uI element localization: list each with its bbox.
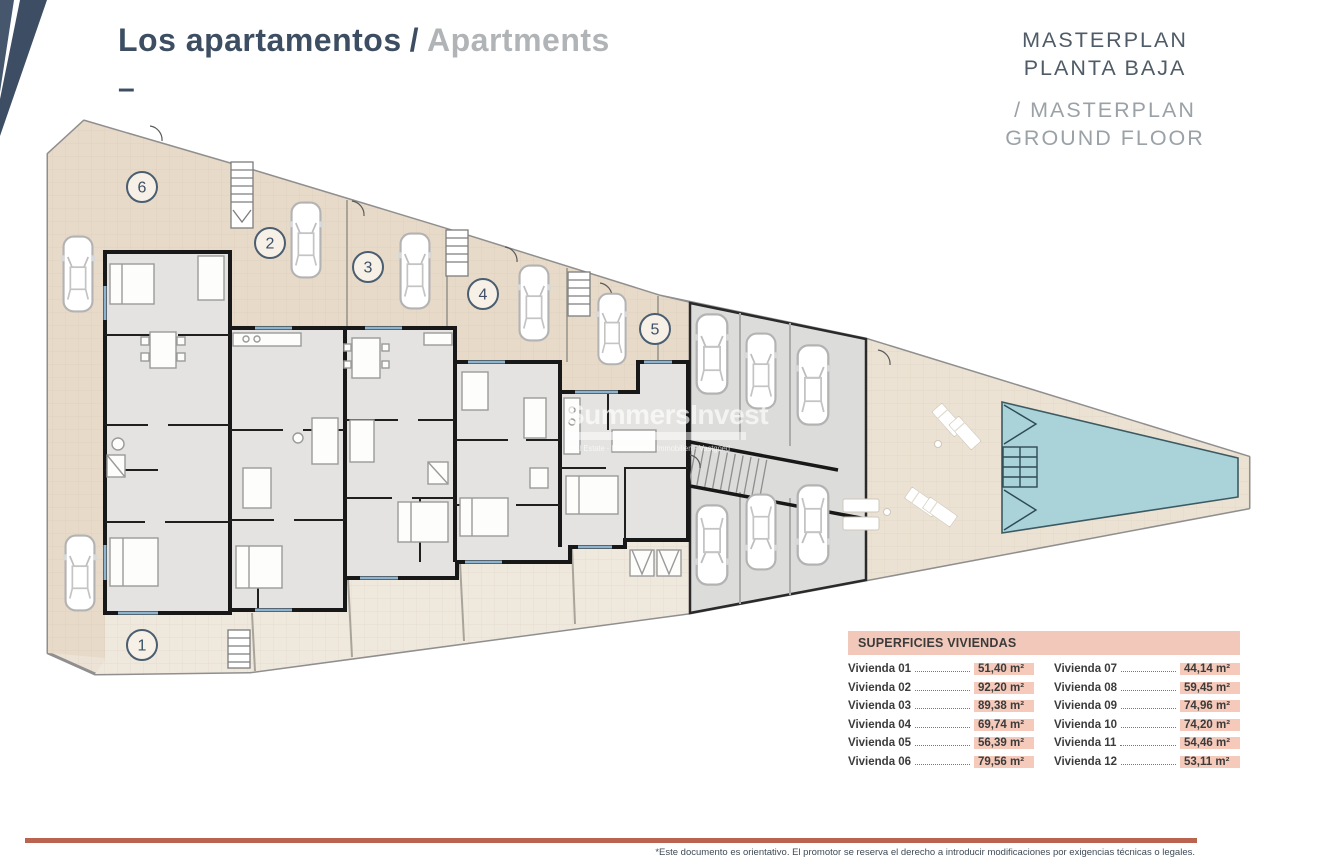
stairs-icon [446,230,468,276]
vivienda-label: Vivienda 08 [1054,682,1117,694]
car-icon [63,536,97,611]
car-icon [289,203,323,278]
vivienda-row: Vivienda 0744,14 m² [1054,663,1240,675]
stairs-icon [568,272,590,316]
car-icon [795,345,831,424]
svg-text:5: 5 [651,322,660,339]
vivienda-row: Vivienda 1253,11 m² [1054,756,1240,768]
svg-text:6: 6 [138,180,147,197]
car-icon [398,234,432,309]
vivienda-area-value: 44,14 m² [1180,663,1240,675]
dot-leader [1121,764,1176,765]
title-separator: / [410,22,419,58]
areas-column-right: Vivienda 0744,14 m²Vivienda 0859,45 m²Vi… [1054,663,1240,774]
svg-text:2: 2 [266,236,275,253]
vivienda-label: Vivienda 01 [848,663,911,675]
areas-column-left: Vivienda 0151,40 m²Vivienda 0292,20 m²Vi… [848,663,1034,774]
car-icon [596,294,628,364]
vivienda-area-value: 59,45 m² [1180,682,1240,694]
vivienda-label: Vivienda 07 [1054,663,1117,675]
vivienda-row: Vivienda 0389,38 m² [848,700,1034,712]
masterplan-line-en-2: GROUND FLOOR [985,124,1225,152]
dot-leader [1121,690,1176,691]
vivienda-row: Vivienda 0679,56 m² [848,756,1034,768]
svg-text:1: 1 [138,638,147,655]
vivienda-row: Vivienda 1074,20 m² [1054,719,1240,731]
vivienda-row: Vivienda 0469,74 m² [848,719,1034,731]
masterplan-line-es-1: MASTERPLAN [985,26,1225,54]
unit-1-badge: 1 [127,630,157,660]
corner-triangle [0,0,47,136]
dot-leader [915,727,970,728]
unit-5-badge: 5 [640,314,670,344]
vivienda-area-value: 92,20 m² [974,682,1034,694]
dot-leader [1121,727,1176,728]
areas-table-header: SUPERFICIES VIVIENDAS [848,631,1240,655]
vivienda-label: Vivienda 11 [1054,737,1116,749]
car-icon [517,266,551,341]
masterplan-heading: MASTERPLAN PLANTA BAJA / MASTERPLAN GROU… [985,26,1225,152]
vivienda-label: Vivienda 05 [848,737,911,749]
dot-leader [1121,671,1176,672]
car-icon [694,505,730,584]
vivienda-area-value: 74,20 m² [1180,719,1240,731]
vivienda-area-value: 53,11 m² [1180,756,1240,768]
vivienda-label: Vivienda 03 [848,700,911,712]
stairs-icon [231,162,253,228]
masterplan-line-en-1: / MASTERPLAN [985,96,1225,124]
car-icon [795,485,831,564]
vivienda-area-value: 56,39 m² [974,737,1034,749]
vivienda-row: Vivienda 0974,96 m² [1054,700,1240,712]
title-dash: – [118,72,135,106]
dot-leader [915,745,970,746]
vivienda-row: Vivienda 0151,40 m² [848,663,1034,675]
vivienda-area-value: 74,96 m² [1180,700,1240,712]
masterplan-line-es-2: PLANTA BAJA [985,54,1225,82]
areas-table: SUPERFICIES VIVIENDAS Vivienda 0151,40 m… [848,631,1240,774]
dot-leader [1120,745,1176,746]
dot-leader [915,708,970,709]
vivienda-area-value: 51,40 m² [974,663,1034,675]
stairs-icon [228,630,250,668]
vivienda-label: Vivienda 04 [848,719,911,731]
dot-leader [1121,708,1176,709]
vivienda-row: Vivienda 0292,20 m² [848,682,1034,694]
vivienda-area-value: 89,38 m² [974,700,1034,712]
vivienda-row: Vivienda 0556,39 m² [848,737,1034,749]
car-icon [744,334,778,409]
unit-2-badge: 2 [255,228,285,258]
vivienda-area-value: 54,46 m² [1180,737,1240,749]
svg-text:3: 3 [364,260,373,277]
vivienda-row: Vivienda 0859,45 m² [1054,682,1240,694]
car-icon [744,495,778,570]
unit-3-badge: 3 [353,252,383,282]
dot-leader [915,764,970,765]
vivienda-area-value: 79,56 m² [974,756,1034,768]
dot-leader [915,690,970,691]
vivienda-label: Vivienda 06 [848,756,911,768]
footer-rule [25,838,1197,843]
disclaimer-text: *Este documento es orientativo. El promo… [655,847,1195,858]
title-english: Apartments [427,22,610,58]
page-title: Los apartamentos/Apartments [118,22,610,59]
vivienda-area-value: 69,74 m² [974,719,1034,731]
vivienda-label: Vivienda 02 [848,682,911,694]
vivienda-label: Vivienda 09 [1054,700,1117,712]
car-icon [694,314,730,393]
dot-leader [915,671,970,672]
car-icon [61,237,95,312]
unit-4-badge: 4 [468,279,498,309]
svg-text:4: 4 [479,287,488,304]
title-spanish: Los apartamentos [118,22,402,58]
unit-6-badge: 6 [127,172,157,202]
vivienda-label: Vivienda 12 [1054,756,1117,768]
areas-table-columns: Vivienda 0151,40 m²Vivienda 0292,20 m²Vi… [848,663,1240,774]
vivienda-label: Vivienda 10 [1054,719,1117,731]
vivienda-row: Vivienda 1154,46 m² [1054,737,1240,749]
